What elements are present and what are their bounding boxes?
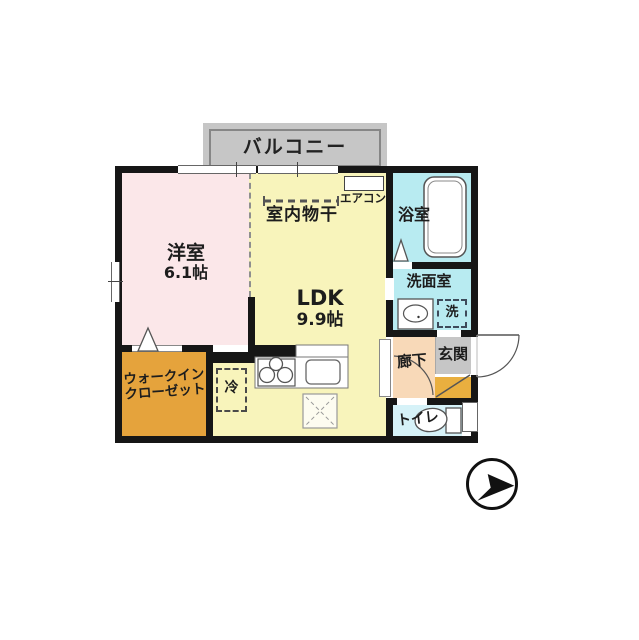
wall-wic-top-a bbox=[115, 345, 132, 352]
wall-left bbox=[115, 166, 122, 443]
refrigerator-label: 冷 bbox=[216, 381, 247, 397]
entrance-step bbox=[435, 375, 471, 398]
bathroom-label: 浴室 bbox=[393, 206, 435, 224]
window-tick bbox=[236, 162, 237, 177]
hallway-label: 廊下 bbox=[391, 351, 432, 371]
balcony-label: バルコニー bbox=[203, 137, 387, 158]
aircon-label: エアコン bbox=[337, 192, 389, 205]
window-toilet bbox=[462, 402, 478, 432]
floor-plan: バルコニー 冷 洗 エアコン bbox=[0, 0, 639, 640]
wall-right-upper bbox=[471, 166, 478, 337]
hallway-door-panel bbox=[379, 339, 391, 397]
wall-wash-hall-a bbox=[386, 330, 437, 337]
western-room-size: 6.1帖 bbox=[136, 264, 236, 282]
indoor-drying-label: 室内物干 bbox=[258, 206, 346, 225]
door-opening-washroom bbox=[385, 278, 394, 300]
window-western-left bbox=[111, 262, 120, 302]
western-room-label: 洋室 bbox=[136, 243, 236, 264]
window-tick bbox=[297, 162, 298, 177]
wall-wic-right bbox=[206, 352, 213, 443]
washroom-label: 洗面室 bbox=[396, 273, 462, 290]
door-opening-bathroom bbox=[393, 262, 412, 269]
ldk-size: 9.9帖 bbox=[270, 311, 370, 330]
wall-bottom bbox=[115, 436, 478, 443]
door-opening-entrance bbox=[471, 337, 478, 375]
wall-wic-top-b bbox=[182, 345, 213, 352]
door-opening-wic bbox=[132, 345, 182, 352]
washer-label: 洗 bbox=[437, 306, 467, 321]
compass-icon bbox=[468, 460, 517, 509]
wall-bath-wash bbox=[412, 262, 471, 269]
wic-label-group: ウォークイン クローゼット bbox=[123, 367, 205, 403]
entrance-door-icon bbox=[477, 335, 519, 377]
wall-hall-toilet-a bbox=[386, 398, 397, 405]
window-balcony-door bbox=[258, 165, 338, 174]
ldk-label: LDK bbox=[270, 287, 370, 311]
window-western-top bbox=[178, 165, 256, 174]
door-opening-toilet bbox=[397, 398, 427, 405]
wall-wash-hall-b bbox=[461, 330, 471, 337]
window-tick bbox=[108, 281, 123, 282]
ldk-label-group: LDK 9.9帖 bbox=[270, 287, 370, 330]
door-opening-wash-hall bbox=[437, 330, 461, 337]
entrance-label: 玄関 bbox=[436, 346, 470, 363]
western-room-label-group: 洋室 6.1帖 bbox=[136, 243, 236, 282]
sliding-partition-line bbox=[249, 173, 251, 297]
wall-ldk-right-a bbox=[386, 166, 393, 278]
aircon-unit bbox=[344, 176, 384, 191]
wall-kitchen bbox=[248, 345, 296, 357]
